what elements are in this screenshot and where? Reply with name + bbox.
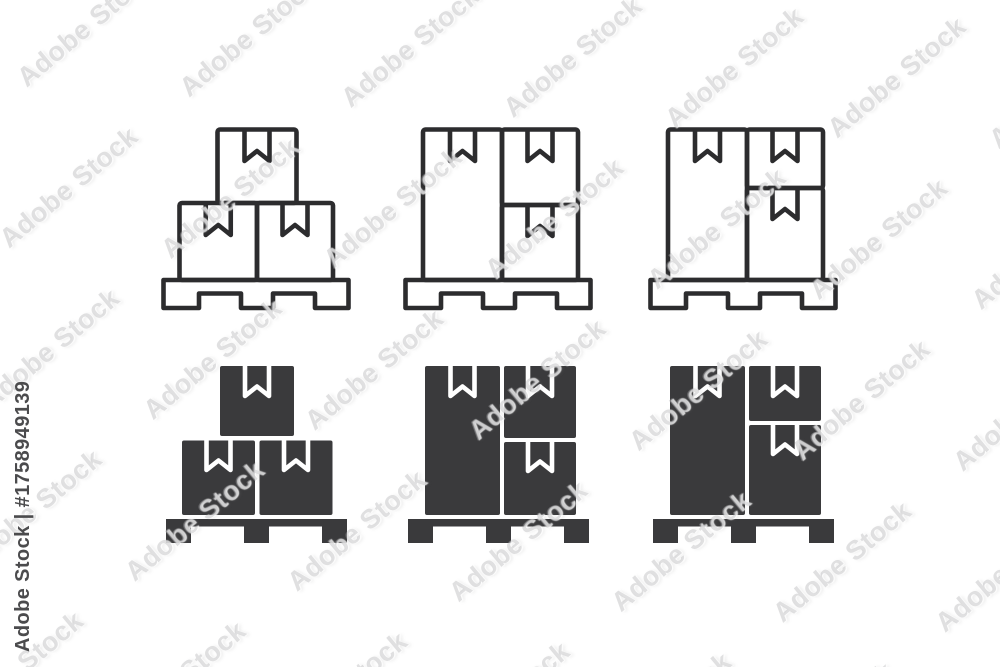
- box-bottom-right: [749, 425, 821, 515]
- watermark-tile-text: Adobe Stock: [587, 646, 738, 667]
- box-lower-left: [182, 441, 255, 516]
- watermark-tile-text: Adobe Stock: [659, 1, 810, 134]
- icon-pallet-boxes-pyramid-outline: [161, 127, 351, 311]
- watermark-tile-text: Adobe Stock: [11, 0, 162, 93]
- watermark-tile-text: Adobe Stock: [263, 626, 414, 667]
- pallet: [408, 519, 589, 543]
- icon-pallet-boxes-pyramid-filled: [161, 362, 351, 546]
- pallet-boxes-tall-left-outline-icon: [403, 127, 593, 311]
- box-top-right: [747, 130, 823, 189]
- watermark-tile-text: Adobe Stock: [930, 505, 1000, 638]
- watermark-tile-text: Adobe Stock: [822, 11, 973, 144]
- watermark-tile-grid: Adobe StockAdobe StockAdobe StockAdobe S…: [0, 0, 1000, 667]
- watermark-tile-text: Adobe Stock: [0, 444, 108, 577]
- box-lower-right: [260, 441, 333, 516]
- watermark-layer: Adobe StockAdobe StockAdobe StockAdobe S…: [0, 0, 1000, 667]
- pallet: [651, 280, 836, 308]
- watermark-tile-text: Adobe Stock: [966, 182, 1000, 315]
- stock-image-canvas: Adobe StockAdobe StockAdobe StockAdobe S…: [0, 0, 1000, 667]
- box-lower-right: [257, 203, 333, 280]
- tape-ribbon-icon: [450, 130, 475, 161]
- watermark-tile-text: Adobe Stock: [102, 615, 253, 667]
- watermark-tile-text: Adobe Stock: [426, 636, 577, 667]
- box-top: [220, 366, 294, 436]
- icon-pallet-boxes-tall-left-outline: [403, 127, 593, 311]
- watermark-tile-text: Adobe Stock: [983, 21, 1000, 154]
- tape-ribbon-icon: [695, 130, 720, 161]
- tape-ribbon-icon: [528, 205, 553, 236]
- icon-pallet-boxes-tall-left-filled: [403, 362, 593, 546]
- box-bottom-right: [502, 205, 578, 280]
- tape-ribbon-icon: [773, 188, 798, 219]
- watermark-tile-text: Adobe Stock: [947, 344, 1000, 477]
- watermark-tile-text: Adobe Stock: [0, 605, 90, 667]
- pallet: [166, 519, 347, 543]
- icon-pallet-boxes-small-top-right-outline: [648, 127, 838, 311]
- watermark-id-label: Adobe Stock | #1758949139: [12, 381, 35, 652]
- pallet-boxes-small-top-right-outline-icon: [648, 127, 838, 311]
- watermark-tile-text: Adobe Stock: [0, 283, 126, 416]
- watermark-tile-text: Adobe Stock: [0, 121, 144, 254]
- icon-pallet-boxes-small-top-right-filled: [648, 362, 838, 546]
- watermark-tile-text: Adobe Stock: [174, 0, 325, 103]
- pallet-boxes-tall-left-filled-icon: [403, 362, 593, 546]
- box-bottom-right: [747, 188, 823, 280]
- box-top: [218, 130, 297, 204]
- box-top-right: [749, 366, 821, 421]
- tape-ribbon-icon: [283, 203, 308, 235]
- tape-ribbon-icon: [528, 130, 553, 161]
- pallet: [164, 280, 349, 308]
- pallet: [653, 519, 834, 543]
- pallet: [406, 280, 591, 308]
- tape-ribbon-icon: [245, 130, 270, 161]
- tape-ribbon-icon: [773, 130, 798, 161]
- box-lower-left: [180, 203, 258, 280]
- box-top-right: [502, 130, 578, 206]
- watermark-tile-text: Adobe Stock: [498, 0, 649, 124]
- pallet-boxes-pyramid-outline-icon: [161, 127, 351, 311]
- box-bottom-right: [504, 442, 576, 515]
- pallet-boxes-small-top-right-filled-icon: [648, 362, 838, 546]
- watermark-tile-text: Adobe Stock: [335, 0, 486, 114]
- pallet-boxes-pyramid-filled-icon: [161, 362, 351, 546]
- watermark-tile-text: Adobe Stock: [750, 656, 901, 667]
- tape-ribbon-icon: [206, 203, 231, 235]
- box-top-right: [504, 366, 576, 438]
